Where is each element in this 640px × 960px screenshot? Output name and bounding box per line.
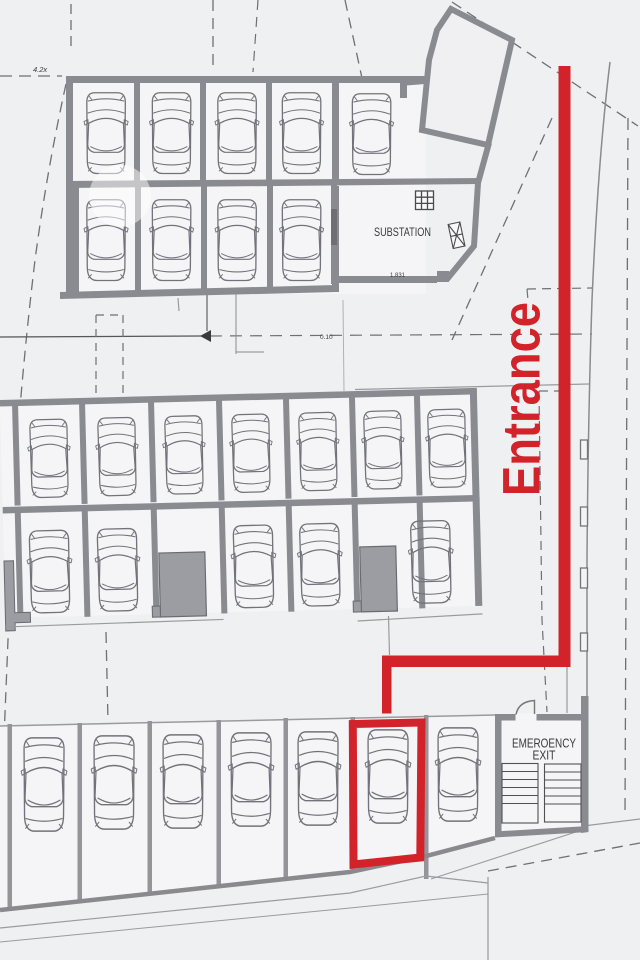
svg-text:4.2x: 4.2x [33, 65, 47, 74]
svg-text:0.10: 0.10 [320, 334, 333, 341]
svg-text:Entrance: Entrance [493, 302, 552, 496]
svg-text:SUBSTATION: SUBSTATION [374, 227, 431, 239]
svg-text:1.831: 1.831 [390, 273, 406, 279]
svg-text:EXIT: EXIT [533, 748, 556, 763]
